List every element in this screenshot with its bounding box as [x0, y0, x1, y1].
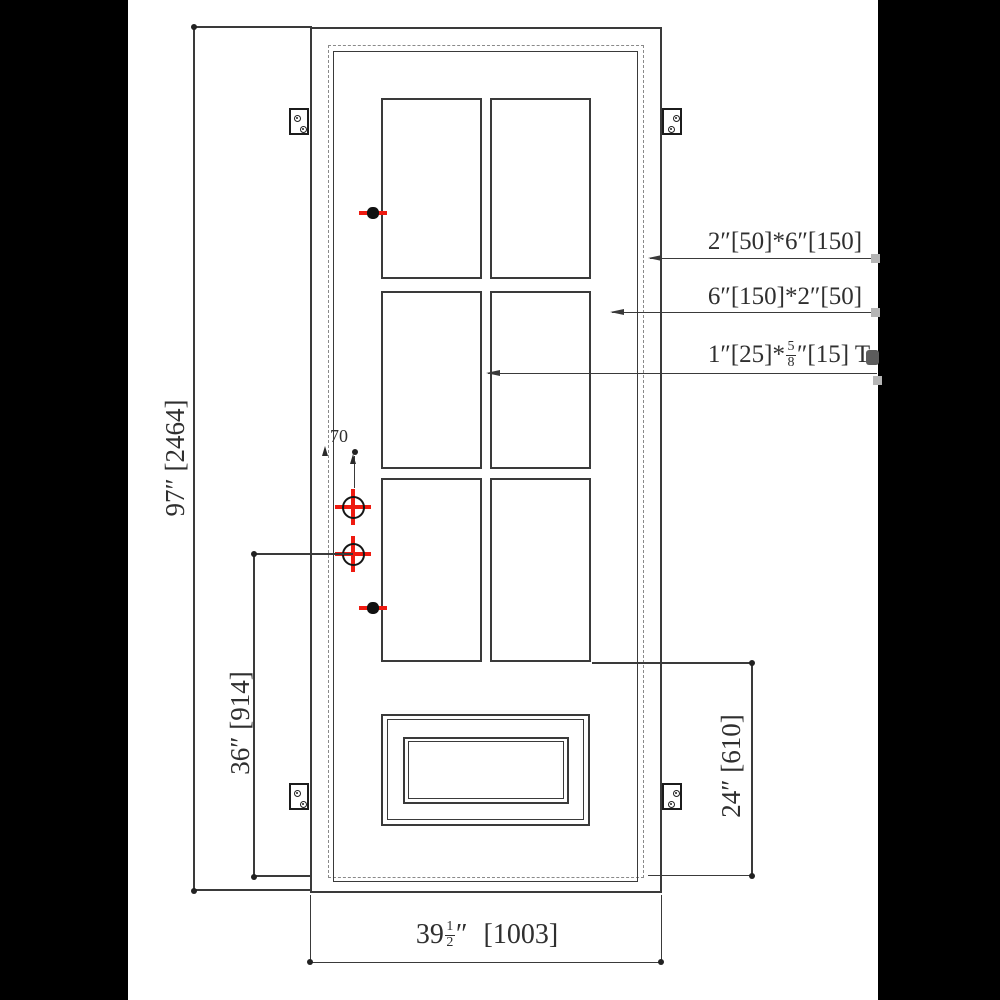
backset-dimension-label: 70	[330, 426, 348, 446]
width-fraction: 12	[445, 920, 455, 950]
glass-pane-bottom-left	[381, 478, 482, 662]
lock-point-marker-bottom	[359, 601, 387, 615]
dim-endpoint-dot	[251, 874, 257, 880]
hinge-bracket-top-left	[289, 108, 309, 135]
muntin-profile-pre: 1″[25]*	[708, 340, 785, 370]
dim-height-top-extension	[194, 26, 312, 28]
dim-endpoint-dot	[191, 888, 197, 894]
muntin-profile-post: ″[15] T	[797, 340, 870, 370]
dim-endpoint-dot	[307, 959, 313, 965]
screw-hole	[300, 126, 307, 133]
dim-endpoint-dot	[251, 551, 257, 557]
crosshair-circle	[342, 496, 365, 519]
grip-handle	[871, 254, 880, 263]
lock-point-icon	[367, 602, 379, 614]
dim-height-label: 97″ [2464]	[159, 368, 191, 548]
dim-height-bottom-extension	[194, 889, 312, 891]
lock-point-marker-top	[359, 206, 387, 220]
callout-frame-profile: 2″[50]*6″[150]	[700, 227, 870, 257]
kick-panel-inner	[408, 741, 564, 799]
dim-handle-bottom-extension	[254, 875, 311, 877]
hinge-bracket-top-right	[662, 108, 682, 135]
screw-hole	[668, 801, 675, 808]
left-letterbox-band	[0, 0, 128, 1000]
glass-pane-top-right	[490, 98, 591, 279]
callout-frame-leader	[650, 258, 877, 260]
screw-hole	[668, 126, 675, 133]
lock-point-icon	[367, 207, 379, 219]
dim-width-right-extension	[661, 895, 663, 963]
right-letterbox-band	[878, 0, 1000, 1000]
dim-bottom-section-line	[751, 663, 753, 876]
grip-handle	[871, 308, 880, 317]
door-elevation-drawing: 70 97″ [2464] 36″ [914] 24″ [610] 3912″[…	[0, 0, 1000, 1000]
dim-bottom-section-bottom-extension	[648, 875, 752, 877]
dim-width-label: 3912″[1003]	[387, 918, 587, 952]
callout-leaf-profile: 6″[150]*2″[50]	[700, 282, 870, 312]
dim-bottom-section-top-leader	[592, 662, 752, 664]
handle-crosshair-upper	[335, 489, 371, 525]
callout-leaf-arrowhead	[610, 309, 624, 315]
glass-pane-middle-left	[381, 291, 482, 469]
glass-pane-bottom-right	[490, 478, 591, 662]
callout-muntin-profile: 1″[25]*58″[15] T	[706, 340, 872, 370]
dim-width-line	[310, 962, 662, 964]
dim-endpoint-dot	[658, 959, 664, 965]
callout-frame-arrowhead	[648, 255, 662, 261]
dim-bottom-section-label: 24″ [610]	[715, 676, 747, 856]
screw-hole	[673, 790, 680, 797]
glass-pane-top-left	[381, 98, 482, 279]
screw-hole	[294, 115, 301, 122]
dim-endpoint-dot	[749, 873, 755, 879]
truncated-character-blotch	[866, 350, 879, 365]
backset-arrowhead	[350, 454, 356, 464]
dim-height-line	[193, 27, 195, 891]
width-metric: [1003]	[484, 918, 559, 952]
callout-leaf-leader	[612, 312, 877, 314]
dim-handle-height-label: 36″ [914]	[224, 638, 256, 808]
backset-edge-arrowhead	[322, 446, 328, 456]
width-whole-number: 39	[416, 918, 444, 952]
grip-handle	[873, 376, 882, 385]
dim-endpoint-dot	[191, 24, 197, 30]
glass-pane-middle-right	[490, 291, 591, 469]
callout-muntin-arrowhead	[486, 370, 500, 376]
screw-hole	[300, 801, 307, 808]
dim-endpoint-dot	[749, 660, 755, 666]
screw-hole	[294, 790, 301, 797]
dim-width-left-extension	[310, 895, 312, 963]
hinge-bracket-bottom-right	[662, 783, 682, 810]
muntin-fraction: 58	[786, 340, 796, 370]
callout-muntin-leader	[488, 373, 877, 375]
dim-handle-leader	[254, 553, 353, 555]
screw-hole	[673, 115, 680, 122]
hinge-bracket-bottom-left	[289, 783, 309, 810]
width-inch-mark: ″	[456, 918, 468, 952]
